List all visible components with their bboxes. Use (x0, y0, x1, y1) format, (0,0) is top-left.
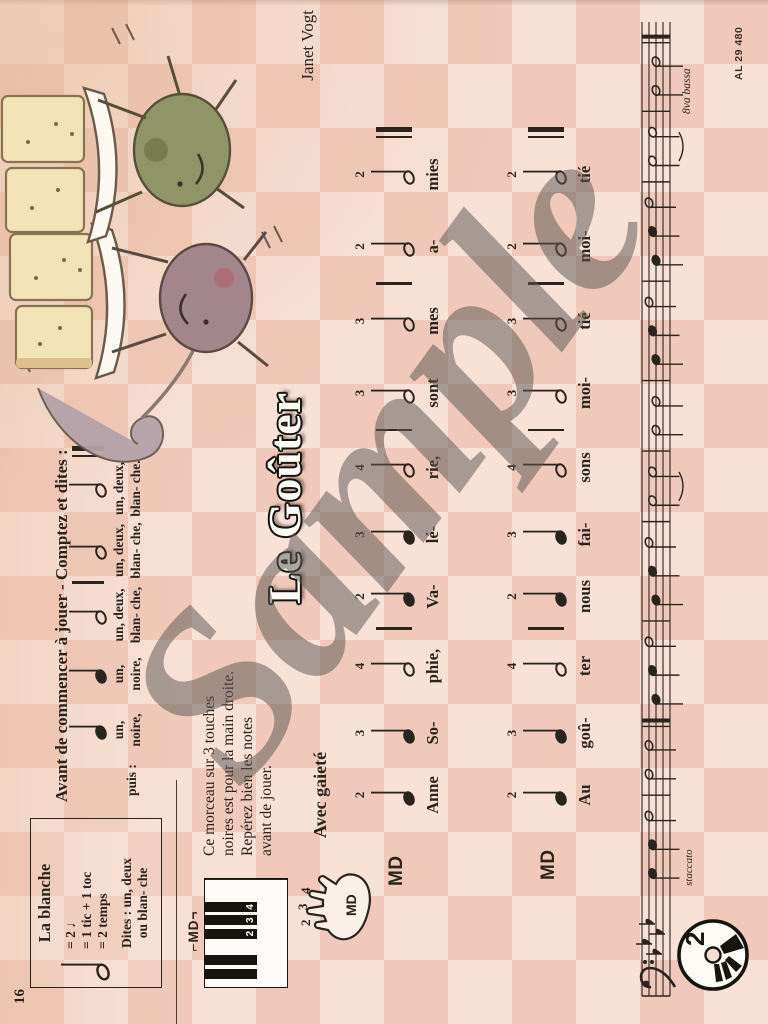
finger-number: 2 (504, 171, 520, 178)
note-cell: 4 ter (504, 630, 595, 702)
barline (528, 429, 564, 432)
barline (376, 429, 412, 432)
finger-number: 3 (504, 531, 520, 538)
note-cell: 2 tié (504, 139, 595, 211)
half-note-icon (520, 382, 568, 404)
equivalence-line: = 1 tic + 1 toc (79, 872, 95, 949)
lyric-syllable: lé- (423, 526, 443, 543)
note-cell: 3 tié (504, 285, 595, 357)
piece-title: Le Goûter (258, 392, 311, 604)
engraved-staff: staccato8va bassa (626, 10, 722, 1014)
cd-track-icon: 2 (674, 916, 752, 994)
leaf-flourish (38, 388, 163, 462)
note-cell: un, deux,blan- che, (66, 520, 144, 582)
quarter-note-icon (520, 722, 568, 744)
count-syllable: un, deux, (111, 524, 127, 577)
lyric-syllable: mies (423, 158, 443, 190)
finger-number: 3 (504, 318, 520, 325)
finger-number: 3 (504, 390, 520, 397)
instruction-line: avant de jouer. (257, 671, 276, 856)
lyric-syllable: nous (575, 580, 595, 613)
rotated-page: 16 AL 29 480 La blanche = 2 ♩ = 1 tic + … (0, 0, 768, 1024)
lyric-syllable: Au (575, 784, 595, 805)
note-name-syllable: noire, (128, 713, 144, 746)
final-barline (376, 127, 412, 139)
toast-tray (10, 224, 125, 378)
lyric-syllable: goû- (575, 717, 595, 748)
count-syllable: un, (111, 721, 127, 739)
equivalence-line: = 2 ♩ (63, 872, 79, 949)
equivalence-line: = 2 temps (95, 872, 111, 949)
final-barline (528, 127, 564, 139)
lyric-syllable: fai- (575, 523, 595, 547)
half-note-icon (520, 457, 568, 479)
barline (528, 628, 564, 631)
tempo-marking: Avec gaieté (310, 752, 331, 838)
instructions-text: Ce morceau sur 3 touches noires est pour… (200, 671, 276, 856)
lyric-syllable: ter (575, 656, 595, 676)
count-syllable: un, (111, 665, 127, 683)
note-cell: 2 moi- (504, 211, 595, 283)
half-note-icon (368, 382, 416, 404)
black-key (205, 955, 257, 965)
lyric-syllable: mes (423, 307, 443, 335)
cd-track-number: 2 (680, 932, 710, 946)
finger-number: 3 (352, 730, 368, 737)
note-cell: un, deux,blan- che, (66, 584, 144, 646)
finger-number: 2 (504, 792, 520, 799)
lyric-syllable: moi- (575, 230, 595, 262)
note-cell: 2 a- (352, 211, 443, 283)
keyboard-diagram: 234 (204, 878, 288, 988)
scanned-sheet-music-page: 16 AL 29 480 La blanche = 2 ♩ = 1 tic + … (0, 0, 768, 1024)
half-note-icon (368, 457, 416, 479)
finger-number: 2 (298, 920, 313, 927)
barline (376, 283, 412, 286)
right-hand-diagram: 2 3 4 MD (298, 860, 372, 952)
note-cell: 2 mies (352, 139, 443, 211)
half-note-icon (368, 310, 416, 332)
finger-number: 2 (352, 171, 368, 178)
instruction-line: Ce morceau sur 3 touches (200, 671, 219, 856)
finger-number: 3 (352, 318, 368, 325)
note-cell: 4 rie, (352, 432, 443, 504)
barline (72, 582, 104, 585)
note-cell: 3 moi- (504, 357, 595, 429)
plum-cherry-character (112, 232, 268, 366)
cherries-carrying-toast-illustration (0, 0, 292, 484)
instruction-line: noires est pour la main droite. (219, 671, 238, 856)
note-cell: 2 nous (504, 566, 595, 628)
finger-number: 3 (352, 531, 368, 538)
count-syllable: un, deux, (111, 589, 127, 642)
page-number: 16 (12, 989, 29, 1004)
barline (376, 628, 412, 631)
note-cell: 3 So- (352, 702, 443, 764)
hand-label-md: MD (386, 855, 408, 886)
black-key (205, 969, 257, 979)
dites-line: ou blan- che (135, 825, 151, 981)
half-note-icon (520, 236, 568, 258)
black-key: 4 (205, 902, 257, 912)
white-key (205, 879, 287, 893)
quarter-note-icon (66, 720, 108, 740)
svg-text:8va bassa: 8va bassa (681, 68, 693, 114)
lyric-syllable: tié (575, 312, 595, 329)
note-cell: 2 Va- (352, 566, 443, 628)
lyric-syllable: sont (423, 378, 443, 407)
finger-number: 3 (352, 390, 368, 397)
note-cell: 4 phie, (352, 630, 443, 702)
note-cell: 2 Au (504, 764, 595, 826)
quarter-note-icon (368, 722, 416, 744)
lyric-syllable: So- (423, 722, 443, 745)
finger-number: 2 (352, 792, 368, 799)
music-system-2: 2 Au3 goû-4 ter2 nous3 fai-4 sons3 moi-3… (504, 64, 595, 826)
black-key: 3 (205, 915, 257, 925)
plate-number: AL 29 480 (733, 27, 745, 80)
note-cell: 3 goû- (504, 702, 595, 764)
note-name-syllable: blan- che, (128, 522, 144, 578)
half-note-icon (368, 236, 416, 258)
lyric-syllable: sons (575, 452, 595, 482)
la-blanche-box: La blanche = 2 ♩ = 1 tic + 1 toc = 2 tem… (30, 818, 162, 988)
instruction-line: Repérez bien les notes (238, 671, 257, 856)
note-cell: 2 Anne (352, 764, 443, 826)
finger-number: 2 (352, 243, 368, 250)
note-cell: 3 sont (352, 357, 443, 429)
half-note-icon (368, 655, 416, 677)
note-name-syllable: blan- che, (128, 587, 144, 643)
finger-number: 4 (504, 464, 520, 471)
note-cell: 3 fai- (504, 504, 595, 566)
puis-label: puis : (124, 764, 140, 796)
hand-palm-label: MD (343, 894, 359, 916)
keyboard-md-bracket-label: ⌐MD¬ (186, 896, 201, 966)
quarter-note-icon (520, 586, 568, 608)
finger-number: 4 (504, 663, 520, 670)
lyric-syllable: a- (423, 240, 443, 254)
black-key: 2 (205, 929, 257, 939)
dites-line: Dites : un, deux (119, 825, 135, 981)
lyric-syllable: Anne (423, 776, 443, 814)
lyric-syllable: tié (575, 166, 595, 183)
green-cherry-character (96, 56, 244, 212)
finger-number: 3 (504, 730, 520, 737)
finger-number: 2 (352, 593, 368, 600)
note-name-syllable: noire, (128, 657, 144, 690)
finger-number: 4 (352, 663, 368, 670)
half-note-icon (520, 310, 568, 332)
divider-rule (176, 780, 177, 1024)
barline (528, 283, 564, 286)
quarter-note-icon (368, 784, 416, 806)
toast-tray (2, 88, 117, 242)
half-note-icon (66, 541, 108, 561)
half-note-icon (368, 164, 416, 186)
music-system-1: 2 Anne3 So-4 phie,2 Va-3 lé-4 rie,3 sont… (352, 64, 443, 826)
quarter-note-icon (520, 524, 568, 546)
note-cell: un,noire, (66, 702, 144, 758)
half-note-icon (520, 164, 568, 186)
half-note-icon (520, 655, 568, 677)
lyric-syllable: moi- (575, 377, 595, 409)
finger-number: 2 (504, 243, 520, 250)
quarter-note-icon (520, 784, 568, 806)
half-note-icon (57, 955, 116, 981)
svg-text:staccato: staccato (683, 849, 695, 886)
quarter-note-icon (368, 524, 416, 546)
lyric-syllable: phie, (423, 649, 443, 683)
hand-label-md: MD (538, 849, 560, 880)
box-title: La blanche (35, 825, 55, 981)
quarter-note-icon (368, 586, 416, 608)
quarter-note-icon (66, 664, 108, 684)
note-cell: 3 lé- (352, 504, 443, 566)
finger-number: 4 (352, 464, 368, 471)
lyric-syllable: rie, (423, 456, 443, 479)
counting-note-row: un,noire, un,noire, un, deux,blan- che, … (66, 446, 144, 758)
note-cell: 4 sons (504, 432, 595, 504)
composer-name: Janet Vogt (298, 10, 318, 124)
finger-number: 2 (504, 593, 520, 600)
note-cell: 3 mes (352, 285, 443, 357)
note-cell: un,noire, (66, 646, 144, 702)
lyric-syllable: Va- (423, 584, 443, 608)
hand-outline (307, 874, 370, 939)
half-note-icon (66, 605, 108, 625)
